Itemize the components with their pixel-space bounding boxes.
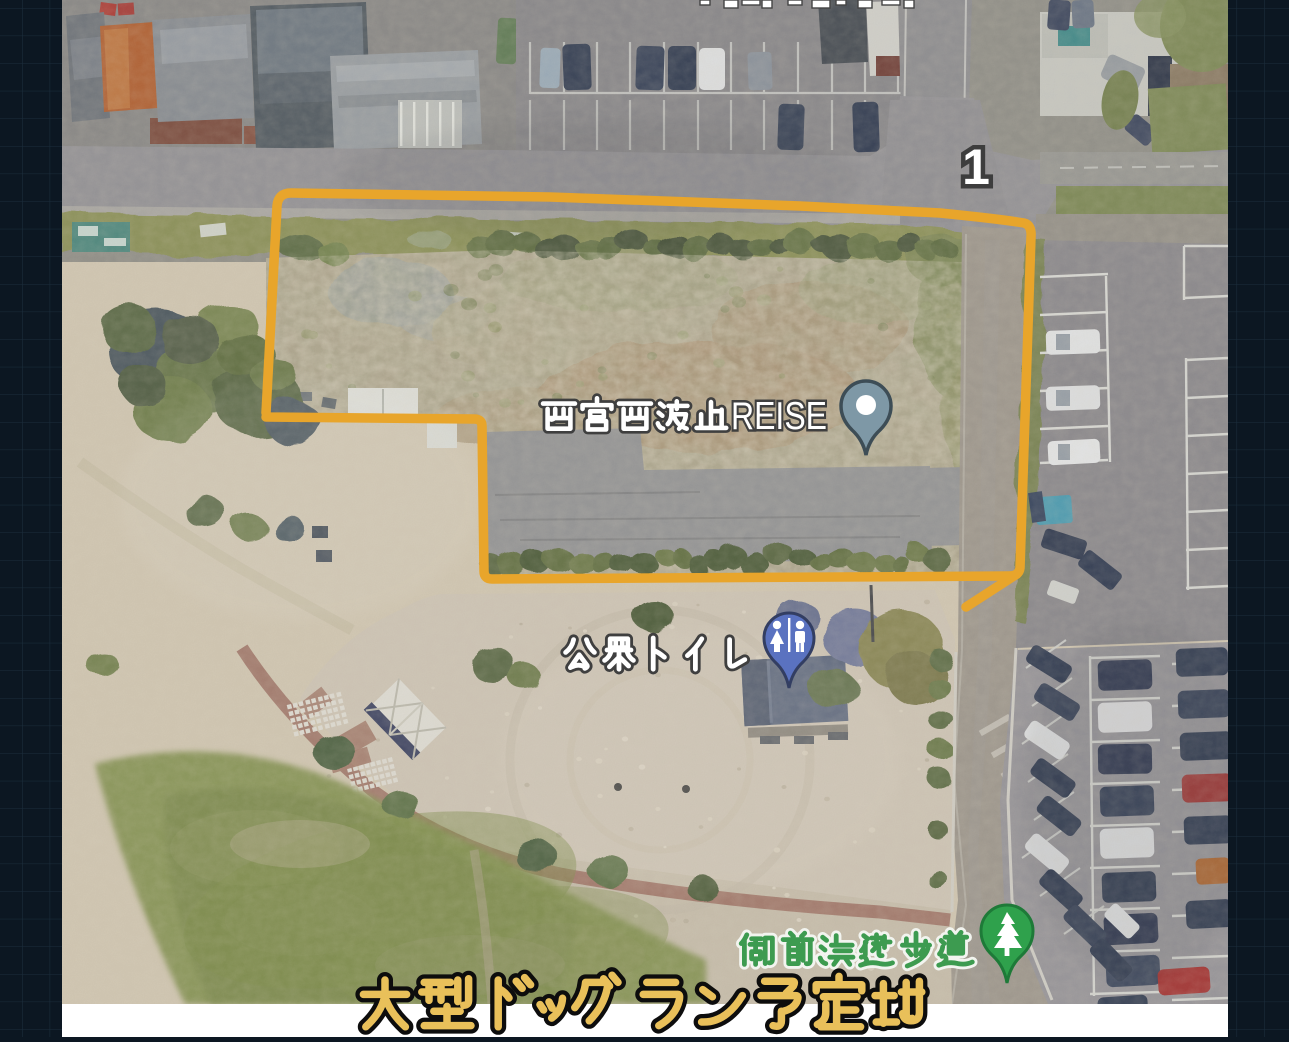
svg-text:REISE: REISE [731, 395, 827, 438]
svg-text:1: 1 [962, 139, 990, 195]
